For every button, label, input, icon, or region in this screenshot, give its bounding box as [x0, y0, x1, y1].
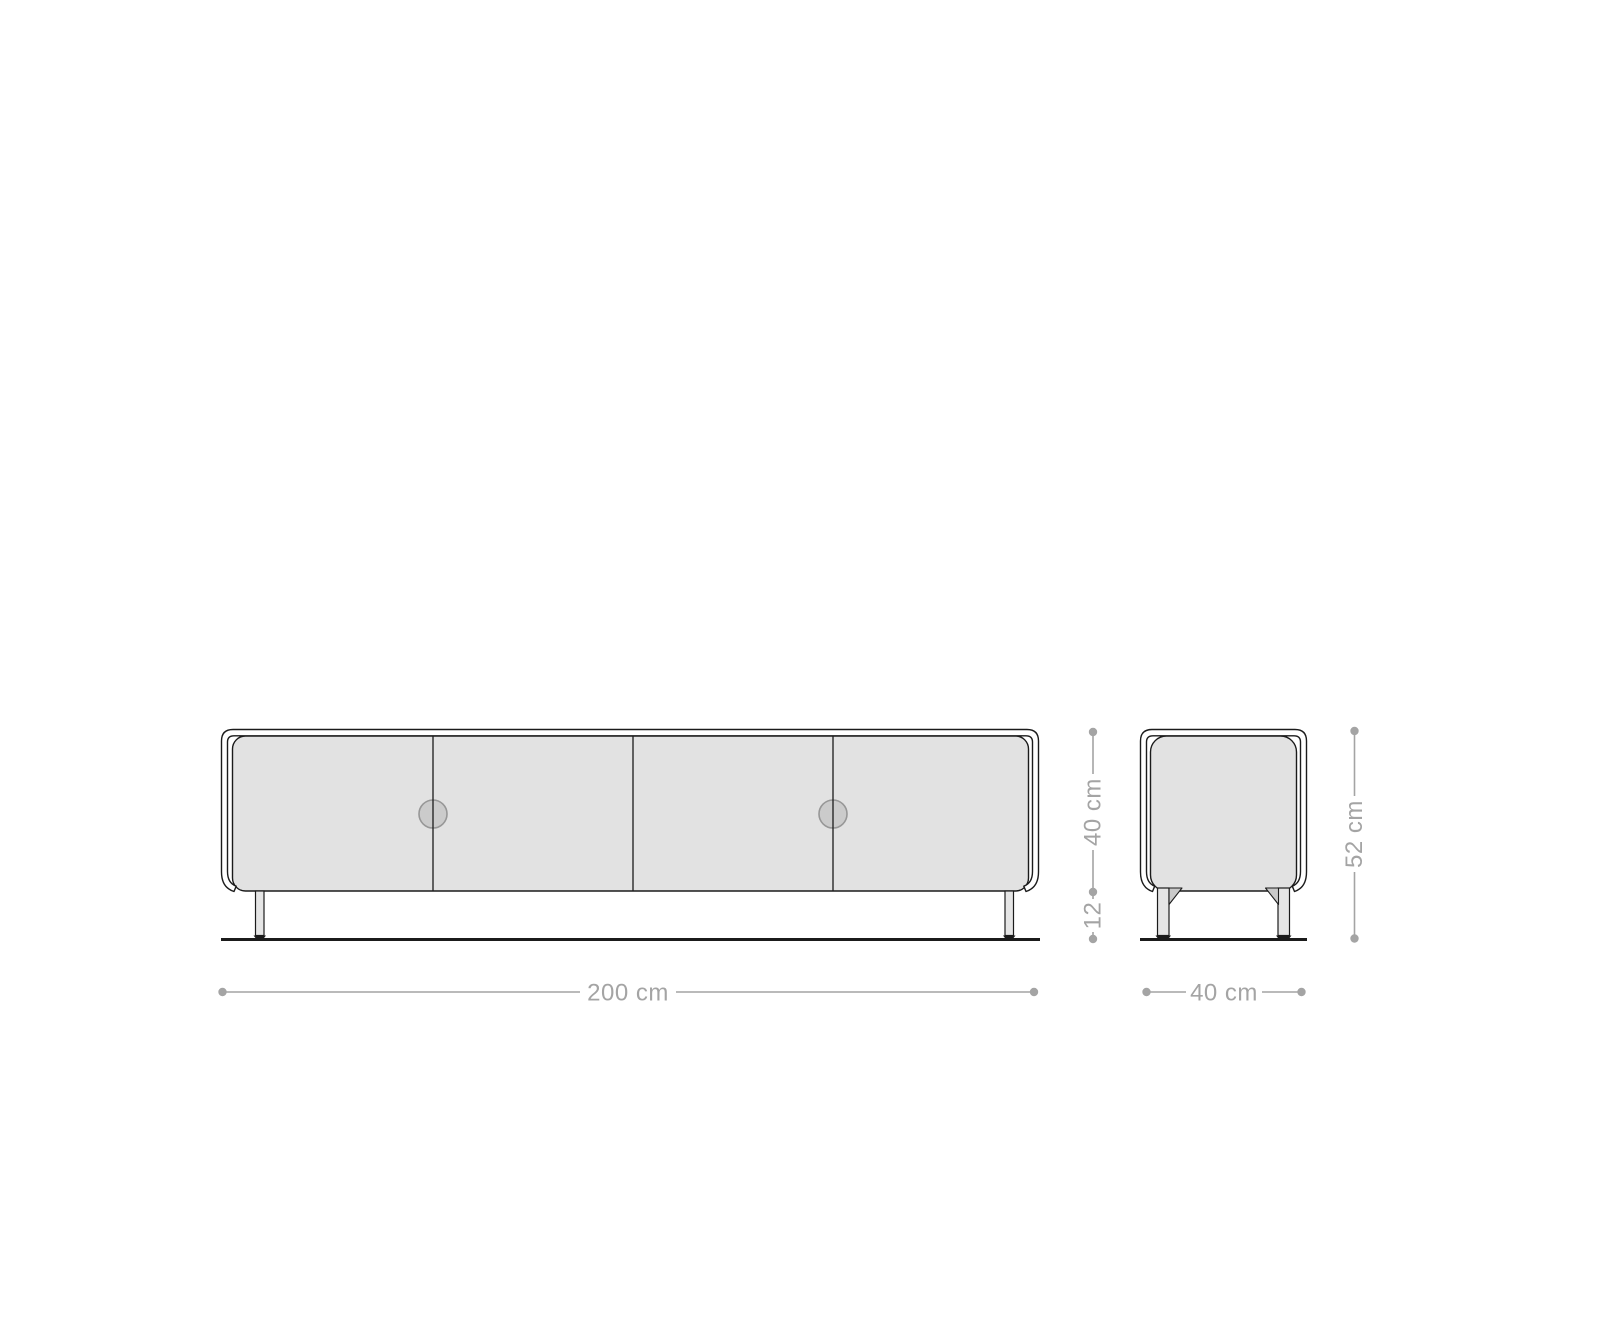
depth-dimension-label: 40 cm: [1190, 980, 1258, 1007]
dimension-endpoint-dot: [1089, 935, 1097, 943]
dimension-endpoint-dot: [1142, 988, 1150, 996]
side-left-leg-bracket: [1169, 888, 1182, 905]
dimension-endpoint-dot: [1089, 888, 1097, 896]
front-right-leg: [1005, 891, 1014, 936]
front-doors-panel: [233, 736, 1029, 891]
dimension-endpoint-dot: [1297, 988, 1305, 996]
dimension-endpoint-dot: [1350, 934, 1358, 942]
dimension-endpoint-dot: [218, 988, 226, 996]
leg-height-dimension-label: 12: [1080, 902, 1107, 930]
leg-height-dimension: 12: [1080, 896, 1107, 943]
total-height-dimension: 52 cm: [1341, 727, 1368, 943]
front-view: [221, 730, 1040, 941]
width-dimension-label: 200 cm: [587, 980, 669, 1007]
dimension-diagram: 200 cm 40 cm: [0, 0, 1600, 1333]
dimension-endpoint-dot: [1030, 988, 1038, 996]
front-left-leg: [256, 891, 265, 936]
side-right-leg-bracket: [1266, 888, 1279, 905]
width-dimension: 200 cm: [218, 980, 1038, 1007]
dimension-diagram-svg: 200 cm 40 cm: [0, 0, 1600, 1333]
body-height-dimension: 40 cm: [1080, 728, 1107, 896]
total-height-dimension-label: 52 cm: [1341, 800, 1368, 868]
depth-dimension: 40 cm: [1142, 980, 1305, 1007]
side-view: [1140, 730, 1307, 941]
dimension-endpoint-dot: [1350, 727, 1358, 735]
side-right-leg: [1278, 888, 1290, 936]
side-left-leg: [1158, 888, 1170, 936]
dimension-endpoint-dot: [1089, 728, 1097, 736]
side-body-panel: [1151, 736, 1297, 891]
body-height-dimension-label: 40 cm: [1080, 778, 1107, 846]
